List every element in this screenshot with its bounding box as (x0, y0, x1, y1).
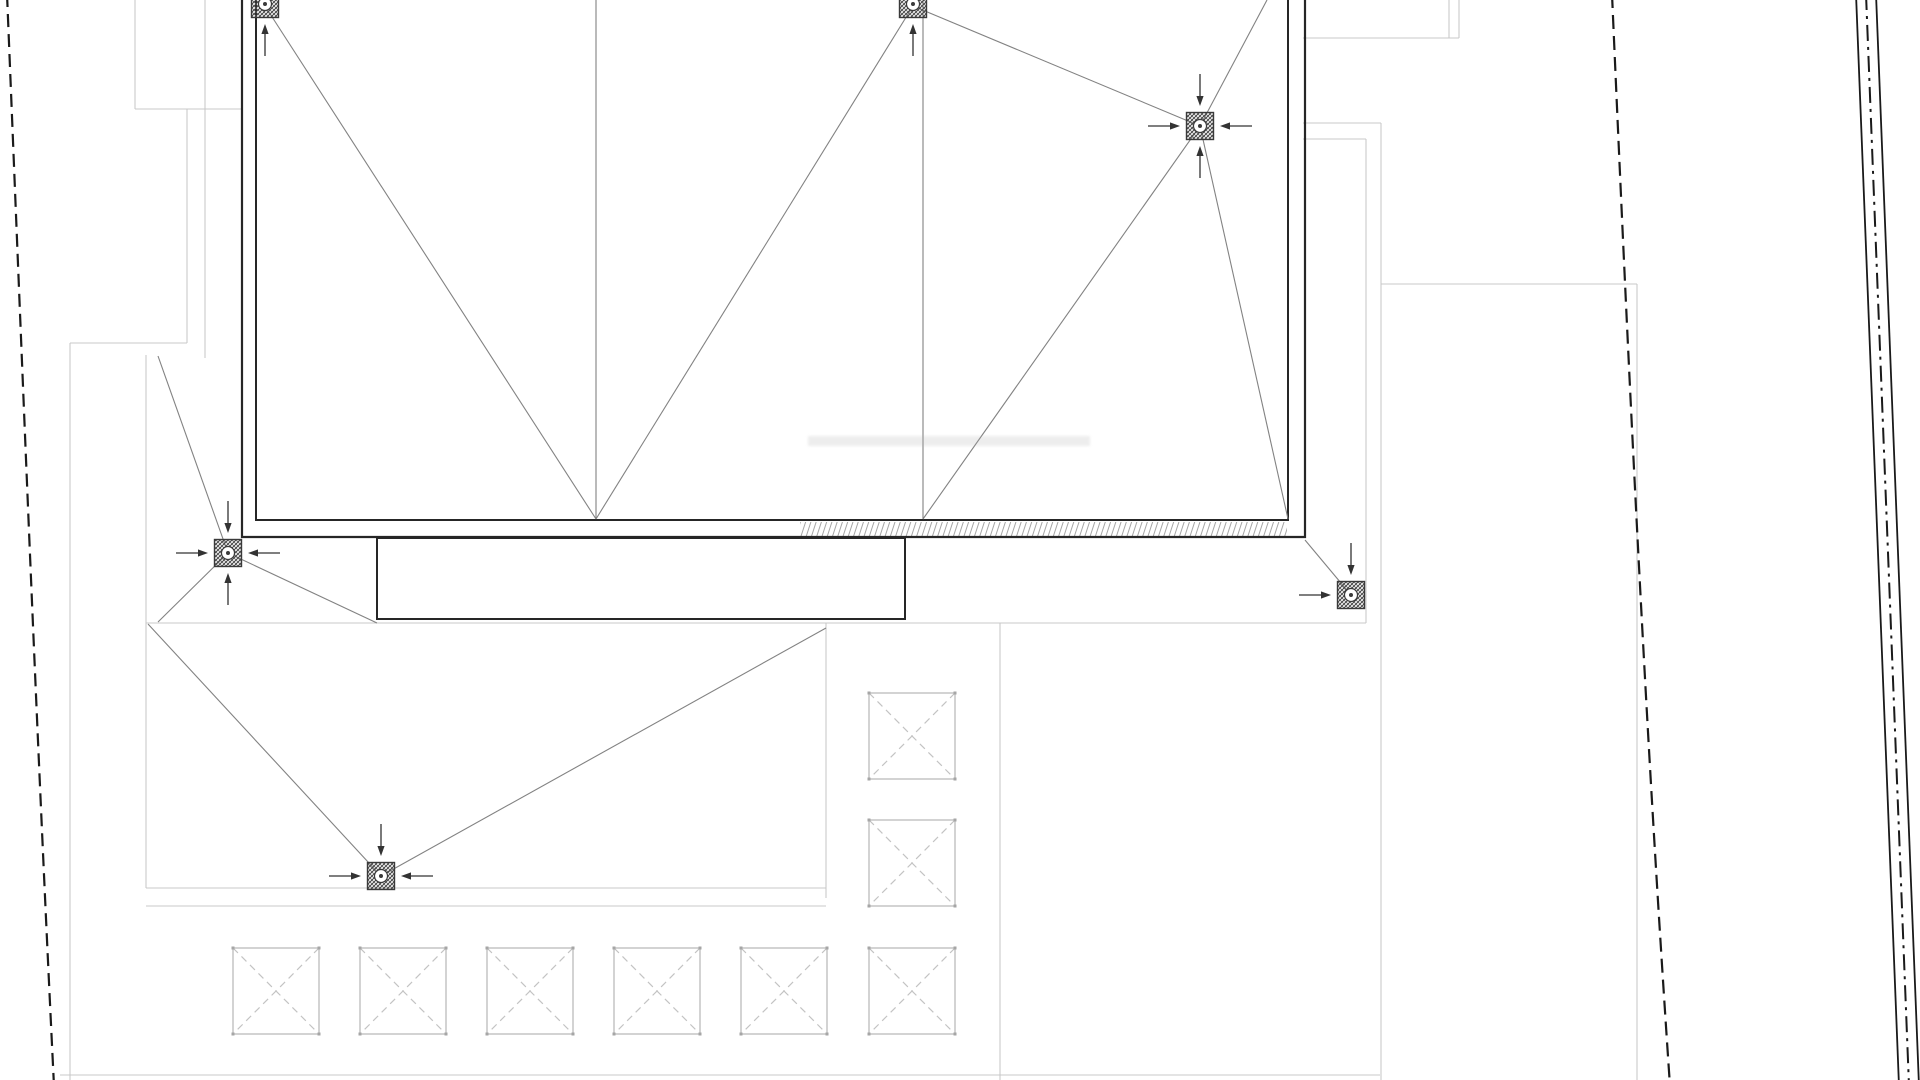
skylight-crossed-square (232, 947, 321, 1036)
skylight-crossed-square (740, 947, 829, 1036)
building-outer-wall (242, 0, 1305, 537)
roof-drain-symbol (1187, 113, 1214, 140)
drain-flow-arrow (224, 501, 231, 533)
roof-slope-line (1200, 0, 1267, 126)
roof-slope-line (381, 628, 826, 876)
drain-flow-arrow (1148, 122, 1180, 129)
roof-drain-symbol (1338, 582, 1365, 609)
roof-plan-page (0, 0, 1920, 1080)
roof-slope-line (158, 356, 228, 553)
drain-flow-arrow (176, 549, 208, 556)
drain-flow-arrow (329, 872, 361, 879)
building-inner-wall (256, 0, 1288, 520)
wall-hatch-band (800, 522, 1287, 536)
roof-slope-line (913, 6, 1200, 126)
roof-slope-line (148, 624, 381, 876)
roof-slope-line (1200, 126, 1288, 519)
site-boundary-road-edge (1866, 0, 1909, 1080)
roof-drainage-plan-canvas (0, 0, 1920, 1080)
roof-drain-symbol (900, 0, 927, 18)
skylight-crossed-square (486, 947, 575, 1036)
site-boundary-left (7, 0, 54, 1080)
drain-flow-arrow (401, 872, 433, 879)
roof-slope-line (265, 6, 596, 519)
drain-flow-arrow (377, 824, 384, 856)
drain-flow-arrow (1347, 543, 1354, 575)
roof-drain-symbol (368, 863, 395, 890)
skylight-crossed-square (868, 947, 957, 1036)
site-boundary-road-edge (1876, 0, 1919, 1080)
drain-flow-arrow (248, 549, 280, 556)
drain-flow-arrow (1299, 591, 1331, 598)
drain-flow-arrow (261, 24, 268, 56)
roof-slope-line (228, 553, 377, 623)
site-boundary-inner-right (1612, 0, 1670, 1080)
canopy-outline (377, 538, 905, 619)
drain-flow-arrow (1196, 146, 1203, 178)
drain-flow-arrow (1196, 74, 1203, 106)
roof-slope-line (923, 126, 1200, 519)
skylight-crossed-square (613, 947, 702, 1036)
skylight-crossed-square (868, 819, 957, 908)
watermark-smudge (808, 436, 1090, 446)
site-boundary-road-edge (1856, 0, 1899, 1080)
drain-flow-arrow (1220, 122, 1252, 129)
drain-flow-arrow (224, 573, 231, 605)
drain-flow-arrow (909, 24, 916, 56)
roof-drain-symbol (215, 540, 242, 567)
skylight-crossed-square (359, 947, 448, 1036)
skylight-crossed-square (868, 692, 957, 781)
roof-drain-symbol (252, 0, 279, 18)
